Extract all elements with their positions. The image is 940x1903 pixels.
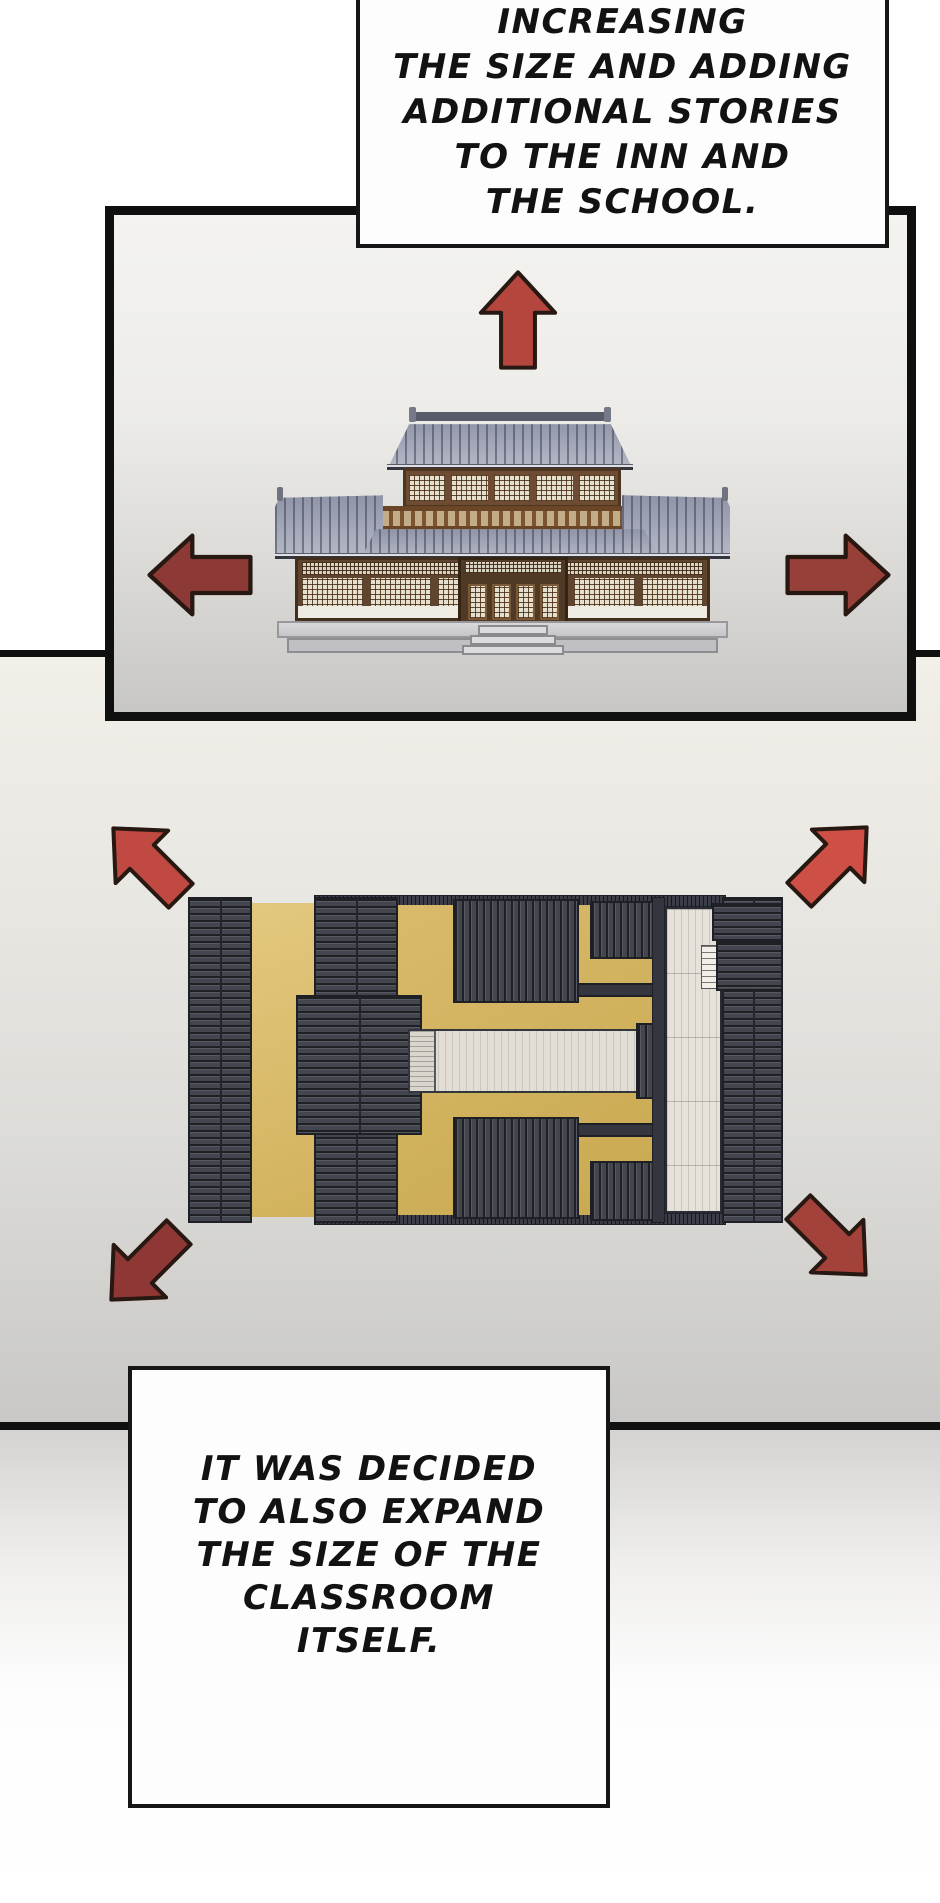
upper-window [536, 475, 572, 501]
caption-line: TO THE INN AND [360, 135, 885, 180]
entrance-door [468, 584, 487, 620]
plan-east-wing-roof-top [712, 903, 783, 941]
arrow-left-icon [147, 531, 253, 619]
plan-main-hall-floor [408, 1029, 656, 1093]
upper-window [451, 475, 487, 501]
upper-window [579, 475, 615, 501]
arrow-up-icon [477, 270, 559, 370]
caption-line: IT WAS DECIDED [132, 1448, 606, 1491]
inn-upper-wall [403, 468, 621, 508]
inn-panel [105, 206, 916, 721]
caption-bubble-bottom: IT WAS DECIDED TO ALSO EXPAND THE SIZE O… [128, 1366, 610, 1808]
plan-west-hall-roof [296, 995, 422, 1135]
plan-northeast-pavilion-roof [590, 901, 656, 959]
entrance-door [540, 584, 559, 620]
plan-north-hall-roof [453, 899, 579, 1003]
plan-left-wing-roof [188, 897, 252, 1223]
plan-south-hall-roof [453, 1117, 579, 1219]
arrow-right-icon [785, 531, 891, 619]
entrance-door [516, 584, 535, 620]
inn-lower-roof [361, 528, 659, 559]
inn-balcony-railing [378, 506, 642, 530]
caption-line: INCREASING [360, 0, 885, 45]
upper-window [494, 475, 530, 501]
caption-line: THE SIZE AND ADDING [360, 45, 885, 90]
caption-bubble-top: INCREASING THE SIZE AND ADDING ADDITIONA… [356, 0, 889, 248]
entrance-door [492, 584, 511, 620]
comic-page: INCREASING THE SIZE AND ADDING ADDITIONA… [0, 0, 940, 1903]
caption-line: CLASSROOM [132, 1577, 606, 1620]
inn-entrance [458, 557, 568, 631]
plan-divider-roof [652, 897, 665, 1223]
plan-east-deck [665, 907, 722, 1213]
inn-entrance-steps [462, 625, 564, 655]
plan-east-wing-roof-mid [716, 941, 783, 991]
entrance-transom [465, 562, 561, 573]
caption-line: TO ALSO EXPAND [132, 1491, 606, 1534]
plan-south-corridor-roof [577, 1123, 655, 1137]
plan-north-corridor-roof [577, 983, 655, 997]
plan-main-hall-stairs [410, 1031, 436, 1091]
caption-line: ITSELF. [132, 1620, 606, 1663]
inn-front-illustration [275, 412, 730, 655]
inn-upper-roof [387, 412, 633, 470]
caption-line: ADDITIONAL STORIES [360, 90, 885, 135]
upper-window [409, 475, 445, 501]
inn-upper-roof-ridge [413, 412, 607, 421]
school-roof-plan-illustration [188, 895, 783, 1225]
caption-line: THE SCHOOL. [360, 180, 885, 225]
caption-line: THE SIZE OF THE [132, 1534, 606, 1577]
plan-southeast-pavilion-roof [590, 1161, 656, 1221]
